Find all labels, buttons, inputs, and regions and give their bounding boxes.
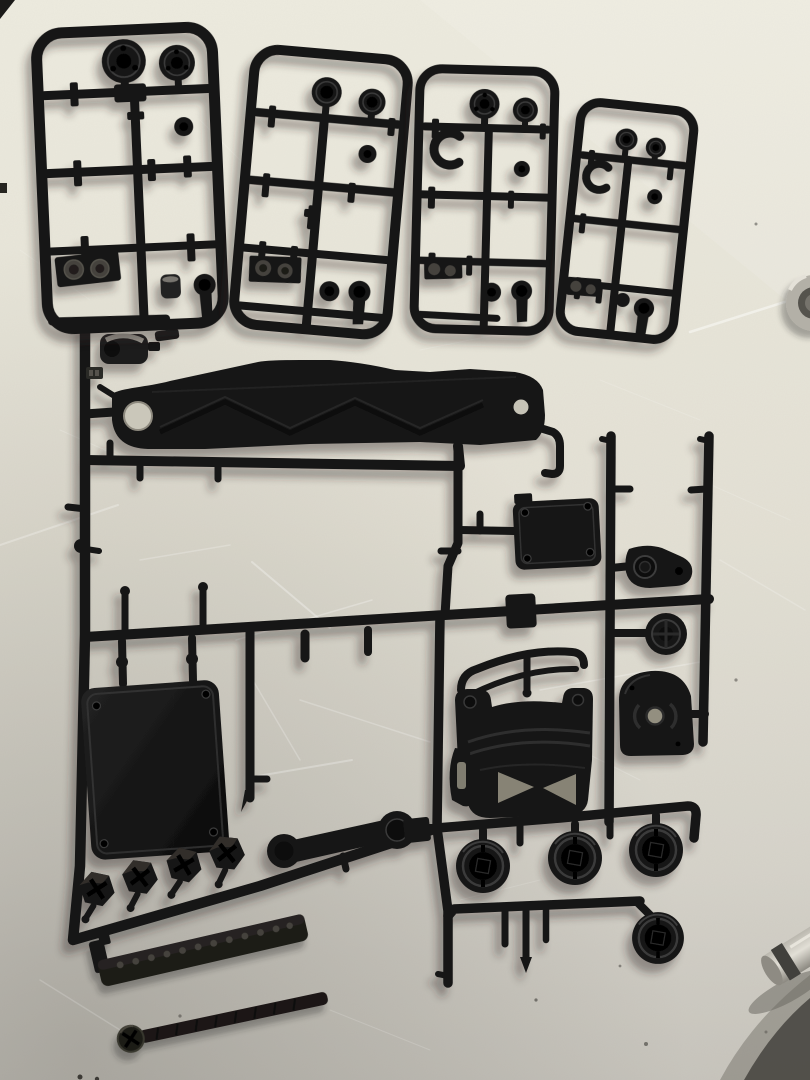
gearbox-housing	[450, 688, 593, 818]
cover-plate-small	[512, 490, 602, 570]
scene-svg	[0, 0, 810, 1080]
servo-saver-disc	[645, 613, 687, 655]
battery-cover-plate	[80, 679, 230, 860]
sprue-b-gear-plate	[249, 256, 302, 284]
sprue-d-gear-plate	[566, 277, 601, 297]
gear-cover-housing	[619, 671, 694, 756]
sprue-c-gear-plate	[424, 258, 463, 279]
sprue-a-cylinder-part	[160, 274, 181, 299]
small-block-part	[505, 593, 537, 629]
photo-model-kit-sprues	[0, 0, 810, 1080]
